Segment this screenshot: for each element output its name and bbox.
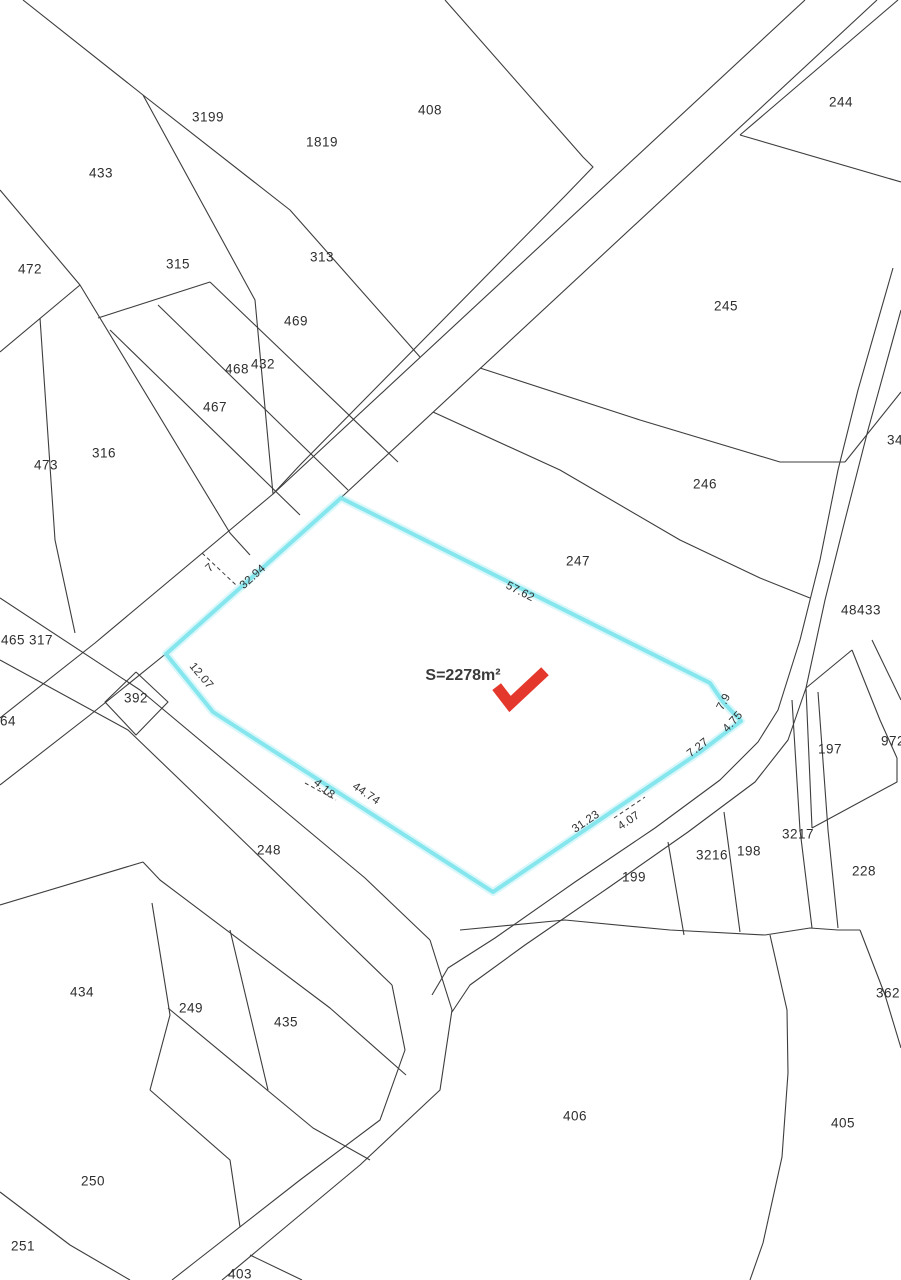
boundary-line [143, 95, 420, 357]
parcel-label-245: 245 [714, 299, 738, 314]
boundary-line [168, 1008, 370, 1160]
boundary-line [0, 862, 143, 905]
boundary-line [80, 285, 250, 555]
boundary-line [740, 135, 901, 182]
boundary-line [143, 95, 273, 494]
boundary-line [812, 758, 897, 828]
parcel-boundaries [0, 0, 901, 1280]
boundary-line [150, 1090, 240, 1227]
boundary-line [222, 940, 452, 1280]
parcel-label-251: 251 [11, 1239, 35, 1254]
boundary-line [740, 0, 898, 135]
cadastral-map: 3199433181940824447231531346943246846731… [0, 0, 901, 1280]
parcel-label-469: 469 [284, 314, 308, 329]
boundary-line [765, 928, 860, 935]
parcel-label-315: 315 [166, 257, 190, 272]
boundary-line [23, 0, 143, 95]
parcel-label-432: 432 [251, 357, 275, 372]
parcel-label-473: 473 [34, 458, 58, 473]
boundary-line [230, 930, 268, 1090]
boundary-line [668, 842, 684, 935]
parcel-label-472: 472 [18, 262, 42, 277]
parcel-label-468: 468 [225, 362, 249, 377]
area-label: S=2278m² [425, 667, 500, 685]
parcel-label-244: 244 [829, 95, 853, 110]
parcel-label-3199: 3199 [192, 110, 224, 125]
boundary-line [150, 903, 170, 1090]
parcel-label-250: 250 [81, 1174, 105, 1189]
parcel-label-362: 362 [876, 986, 900, 1001]
highlighted-parcel-layer [166, 498, 741, 892]
parcel-label-465: 465 [1, 633, 25, 648]
parcel-label-313: 313 [310, 250, 334, 265]
boundary-line [806, 688, 812, 828]
highlighted-parcel-glow [166, 498, 741, 892]
arrow-layer [500, 675, 541, 704]
boundary-line [0, 598, 430, 940]
parcel-label-972: 972 [881, 734, 901, 749]
boundary-line [460, 920, 765, 935]
parcel-label-403: 403 [228, 1267, 252, 1280]
parcel-label-48433: 48433 [841, 603, 881, 618]
boundary-line [480, 368, 845, 462]
parcel-label-247: 247 [566, 554, 590, 569]
parcel-label-316: 316 [92, 446, 116, 461]
boundary-line [250, 1255, 302, 1280]
parcel-label-198: 198 [737, 844, 761, 859]
boundary-line [98, 282, 210, 318]
dimension-ticks [202, 553, 645, 818]
parcel-label-464: 464 [0, 714, 16, 729]
boundary-line [143, 862, 406, 1075]
parcel-label-1819: 1819 [306, 135, 338, 150]
map-canvas [0, 0, 901, 1280]
boundary-line [0, 660, 392, 985]
boundary-line [0, 1192, 130, 1280]
parcel-label-467: 467 [203, 400, 227, 415]
parcel-label-246: 246 [693, 477, 717, 492]
parcel-label-435: 435 [274, 1015, 298, 1030]
boundary-line [158, 305, 348, 490]
boundary-line [792, 700, 812, 928]
parcel-label-3216: 3216 [696, 848, 728, 863]
parcel-label-317: 317 [29, 633, 53, 648]
red-check-arrow [500, 675, 541, 704]
parcel-label-248: 248 [257, 843, 281, 858]
parcel-label-406: 406 [563, 1109, 587, 1124]
boundary-line [724, 812, 740, 932]
parcel-label-405: 405 [831, 1116, 855, 1131]
boundary-line [872, 640, 901, 700]
boundary-line [750, 935, 788, 1280]
parcel-label-199: 199 [622, 870, 646, 885]
parcel-label-197: 197 [818, 742, 842, 757]
boundary-line [40, 318, 75, 633]
parcel-label-228: 228 [852, 864, 876, 879]
parcel-label-249: 249 [179, 1001, 203, 1016]
boundary-line [273, 0, 593, 494]
parcel-label-34: 34 [887, 433, 901, 448]
parcel-label-434: 434 [70, 985, 94, 1000]
parcel-label-433: 433 [89, 166, 113, 181]
boundary-line [818, 692, 838, 928]
parcel-label-3217: 3217 [782, 827, 814, 842]
boundary-line [845, 392, 901, 462]
parcel-label-392: 392 [124, 691, 148, 706]
boundary-line [0, 0, 805, 718]
parcel-label-408: 408 [418, 103, 442, 118]
boundary-line [452, 310, 901, 1012]
